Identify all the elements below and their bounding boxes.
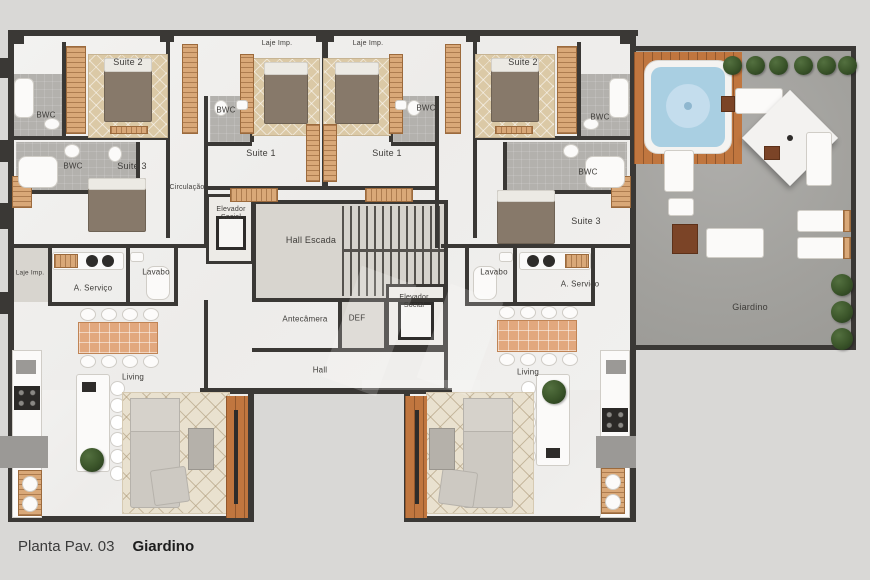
sink-left-2 — [64, 144, 80, 158]
label-suite3-right: Suite 3 — [571, 216, 600, 226]
label-circulacao: Circulação — [169, 184, 204, 192]
corner-pier — [160, 30, 174, 42]
bush — [817, 56, 836, 75]
label-laje-top-right: Laje Imp. — [353, 40, 384, 48]
floor-plan-page: Suite 2BWCBWCSuite 3CirculaçãoLaje Imp.L… — [0, 0, 870, 580]
garden-table-center — [764, 146, 780, 160]
garden-table-white — [668, 198, 694, 216]
plant-left — [80, 448, 104, 472]
kitchen-duct-right — [596, 436, 636, 468]
wardrobe-suite1-left — [240, 54, 254, 134]
closet-suite1-right — [323, 124, 337, 182]
garden-wall-right — [851, 46, 856, 350]
garden-wall-bottom — [630, 345, 856, 350]
dining-chair — [80, 355, 96, 368]
label-bwc-left-2: BWC — [63, 161, 82, 170]
corner-pier — [466, 30, 480, 42]
coffee-table-left — [188, 428, 214, 470]
label-bwc-mid-left: BWC — [216, 105, 235, 114]
stove-right — [602, 408, 628, 432]
wall-segment — [252, 200, 448, 204]
label-elevador-left: Elevador Social — [216, 206, 245, 222]
bathtub-right-top — [609, 78, 629, 118]
coffee-table-right — [429, 428, 455, 470]
wall-segment — [444, 200, 448, 302]
laundry-cabinet-right — [565, 254, 589, 268]
garden-side-table — [721, 96, 735, 112]
label-living-left: Living — [122, 372, 144, 381]
label-suite1-right: Suite 1 — [372, 148, 401, 158]
wardrobe-suite2-left — [66, 46, 86, 134]
label-antecamera: Antecâmera — [282, 314, 327, 323]
lounger-headrest — [843, 237, 851, 259]
bush — [838, 56, 857, 75]
basin — [605, 474, 621, 490]
pillows-suite1-right — [335, 62, 379, 75]
garden-sofa-low — [706, 228, 764, 258]
washer-left — [86, 255, 98, 267]
dresser-suite1-left — [230, 188, 278, 202]
lounger-headrest — [843, 210, 851, 232]
washer-right — [527, 255, 539, 267]
corner-pier — [8, 30, 24, 44]
sink-mid-right — [395, 100, 407, 110]
dresser-suite1-right — [365, 188, 413, 202]
facade-nub — [0, 58, 10, 78]
armchair-right — [438, 468, 479, 509]
label-servico-right: A. Serviço — [561, 279, 599, 288]
plant-right — [542, 380, 566, 404]
wardrobe-suite1-right — [389, 54, 403, 134]
label-suite2-left: Suite 2 — [113, 57, 142, 67]
bathtub-left-top — [14, 78, 34, 118]
basin — [22, 476, 38, 492]
gazebo-pole — [787, 135, 793, 141]
wall-segment — [435, 96, 439, 248]
tv-left — [234, 410, 238, 504]
label-bwc-right-top: BWC — [590, 112, 609, 121]
laundry-cabinet-left — [54, 254, 78, 268]
label-hall-escada: Hall Escada — [286, 235, 336, 245]
staircase-rail — [342, 249, 444, 252]
label-def: DEF — [349, 313, 366, 322]
facade-nub — [0, 292, 10, 314]
toilet-left-2 — [108, 146, 122, 162]
dining-chair — [562, 353, 578, 366]
dining-chair — [541, 306, 557, 319]
label-lavabo-right: Lavabo — [480, 267, 507, 276]
dining-table-left — [78, 322, 158, 354]
label-elevador-right: Elevador Social — [399, 294, 428, 310]
basin — [605, 494, 621, 510]
label-suite1-left: Suite 1 — [246, 148, 275, 158]
toilet-left-top — [44, 118, 60, 130]
wall-segment — [503, 142, 507, 194]
dining-chair — [499, 353, 515, 366]
sink-mid-left — [236, 100, 248, 110]
caption-title: Giardino — [132, 538, 194, 555]
wall-segment — [513, 248, 517, 304]
dining-chair — [101, 355, 117, 368]
wall-segment — [441, 244, 635, 248]
wall-segment — [174, 248, 178, 304]
sink-lavabo-left — [130, 252, 144, 262]
bush — [746, 56, 765, 75]
label-lavabo-left: Lavabo — [142, 267, 169, 276]
corner-pier — [620, 30, 636, 44]
dining-chair — [122, 308, 138, 321]
garden-wall-top — [630, 46, 856, 51]
wall-segment — [391, 142, 435, 146]
pillows-suite3-right — [497, 190, 555, 202]
bush — [794, 56, 813, 75]
kitchen-sink-right — [606, 360, 626, 374]
label-living-right: Living — [517, 367, 539, 376]
label-hall: Hall — [313, 365, 328, 374]
dining-chair — [541, 353, 557, 366]
chaise-left — [130, 398, 180, 432]
watermark-shape — [362, 380, 480, 390]
facade-nub — [0, 140, 10, 162]
kitchen-duct-left — [0, 436, 48, 468]
label-laje-top-left: Laje Imp. — [262, 40, 293, 48]
corner-pier — [316, 30, 334, 42]
garden-table-brown — [672, 224, 698, 254]
label-bwc-left-top: BWC — [36, 110, 55, 119]
wall-segment — [248, 392, 254, 522]
wall-segment — [577, 42, 581, 138]
dining-table-right — [497, 320, 577, 352]
label-bwc-mid-right: BWC — [416, 103, 435, 112]
dining-chair — [520, 306, 536, 319]
label-bwc-right-2: BWC — [578, 167, 597, 176]
bush — [769, 56, 788, 75]
facade-nub — [0, 203, 10, 229]
pillows-suite1-left — [264, 62, 308, 75]
dining-chair — [562, 306, 578, 319]
armchair-left — [150, 466, 191, 507]
tall-wardrobe-left — [182, 44, 198, 134]
bathtub-left-2 — [18, 156, 58, 188]
bush — [831, 328, 853, 350]
jacuzzi-drain — [684, 102, 692, 110]
kitchen-sink-left — [16, 360, 36, 374]
garden-sofa-right — [806, 132, 832, 186]
dryer-right — [543, 255, 555, 267]
wardrobe-suite2-right — [557, 46, 577, 134]
bush — [831, 274, 853, 296]
wall-segment — [591, 248, 595, 304]
dining-chair — [80, 308, 96, 321]
bench-suite2-left — [110, 126, 148, 134]
label-laje-far-left: Laje Imp. — [16, 269, 45, 276]
tv-right — [415, 410, 419, 504]
label-servico-left: A. Serviço — [74, 283, 112, 292]
chaise-right — [463, 398, 513, 432]
caption-prefix: Planta Pav. 03 — [18, 538, 114, 555]
dining-chair — [520, 353, 536, 366]
wall-segment — [48, 302, 178, 306]
dryer-left — [102, 255, 114, 267]
wall-segment — [8, 516, 254, 522]
basin — [22, 496, 38, 512]
tall-wardrobe-right — [445, 44, 461, 134]
bush — [831, 301, 853, 323]
island-tray-left — [82, 382, 96, 392]
label-suite2-right: Suite 2 — [508, 57, 537, 67]
dining-chair — [143, 355, 159, 368]
label-suite3-left: Suite 3 — [117, 161, 146, 171]
pillows-suite3-left — [88, 178, 146, 190]
wall-segment — [204, 300, 208, 392]
dining-chair — [143, 308, 159, 321]
garden-armchair — [664, 150, 694, 192]
bush — [723, 56, 742, 75]
wall-segment — [204, 96, 208, 248]
closet-suite1-left — [306, 124, 320, 182]
stove-left — [14, 386, 40, 410]
wall-segment — [252, 200, 256, 302]
sink-lavabo-right — [499, 252, 513, 262]
wall-segment — [208, 142, 252, 146]
bench-suite2-right — [495, 126, 533, 134]
label-giardino: Giardino — [732, 302, 768, 312]
dining-chair — [122, 355, 138, 368]
island-tray-right — [546, 448, 560, 458]
plan-caption: Planta Pav. 03 Giardino — [18, 538, 194, 555]
sink-right-2 — [563, 144, 579, 158]
dining-chair — [101, 308, 117, 321]
